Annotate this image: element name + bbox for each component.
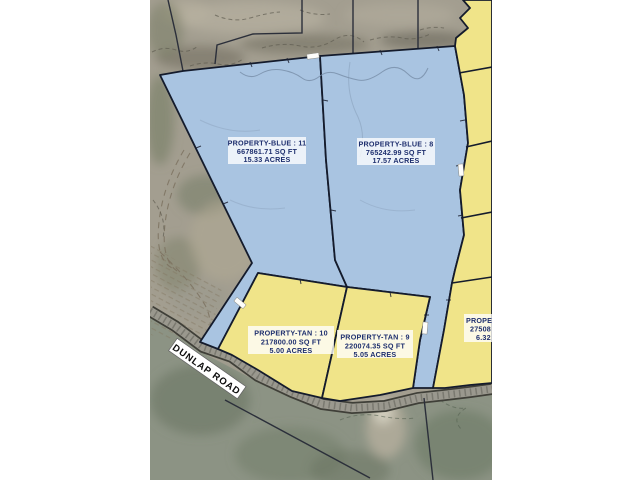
parcel-acres: 17.57 ACRES — [372, 156, 419, 165]
parcel-map-canvas[interactable]: PROPERTY-BLUE : 11 667861.71 SQ FT 15.33… — [0, 0, 640, 480]
parcel-acres: 5.05 ACRES — [354, 350, 397, 359]
parcel-sqft: 217800.00 SQ FT — [261, 337, 322, 346]
parcel-label-clipped-right: PROPE 27508 6.32 — [464, 314, 506, 342]
parcel-label-blue-11: PROPERTY-BLUE : 11 667861.71 SQ FT 15.33… — [228, 137, 307, 164]
parcel-acres: 5.00 ACRES — [270, 346, 313, 355]
parcel-label-blue-8: PROPERTY-BLUE : 8 765242.99 SQ FT 17.57 … — [357, 138, 435, 165]
parcel-name: PROPERTY-TAN : 9 — [340, 333, 409, 342]
parcel-label-tan-10: PROPERTY-TAN : 10 217800.00 SQ FT 5.00 A… — [248, 326, 334, 355]
parcel-acres: 15.33 ACRES — [243, 155, 290, 164]
parcel-name: PROPERTY-TAN : 10 — [254, 329, 328, 338]
parcel-map-page: PROPERTY-BLUE : 11 667861.71 SQ FT 15.33… — [0, 0, 640, 480]
bearing-marker — [422, 322, 428, 334]
parcel-label-tan-9: PROPERTY-TAN : 9 220074.35 SQ FT 5.05 AC… — [337, 330, 413, 359]
bearing-marker — [458, 164, 464, 176]
parcel-sqft: 220074.35 SQ FT — [345, 341, 406, 350]
parcel-acres: 6.32 — [476, 333, 491, 342]
